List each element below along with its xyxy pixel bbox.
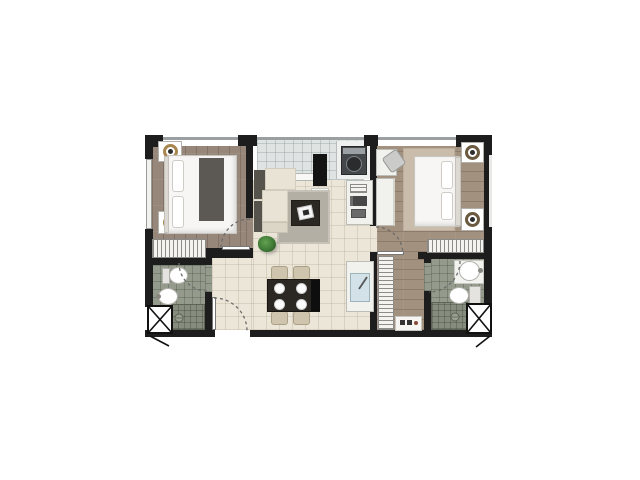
dining-table-gloss [311, 280, 320, 311]
slippers [400, 320, 405, 325]
plate [296, 283, 307, 294]
bedside-lamp-icon [465, 212, 480, 227]
bed-1-runner [199, 158, 224, 221]
bed-1-headboard [164, 156, 169, 233]
shower-1 [171, 304, 205, 330]
pillow [172, 160, 184, 192]
washing-machine-drum [346, 156, 362, 172]
wardrobe-bedroom-1 [152, 239, 206, 258]
pillow [441, 192, 453, 220]
slippers [407, 320, 412, 325]
wall-bottom [250, 330, 472, 337]
toilet-tank [469, 286, 481, 304]
bathroom-1-door-threshold [205, 264, 212, 292]
pillow [172, 196, 184, 228]
wall-right [484, 234, 492, 306]
wall-left [145, 135, 153, 159]
plate [274, 283, 285, 294]
toilet-bowl [449, 287, 469, 304]
shower-2 [431, 302, 468, 330]
wall-bedroom1-south [145, 258, 212, 265]
window-left [146, 159, 152, 229]
kitchen-cooktop [350, 196, 367, 206]
wall-bathroom1-east [205, 292, 212, 332]
sofa-seat [262, 190, 288, 222]
shaft-vent-flap [150, 336, 169, 346]
plate [274, 299, 285, 310]
shaft-vent-flap [476, 336, 490, 347]
sofa-seat-end [262, 222, 288, 233]
window-right [489, 155, 492, 227]
bedroom-1-door-threshold [246, 218, 253, 248]
wall-bathroom2-north [418, 252, 492, 259]
pillow [441, 161, 453, 189]
wall-bathroom1-east [205, 258, 212, 264]
dining-chair [271, 266, 288, 280]
wardrobe-corridor [378, 256, 394, 330]
kitchen-sink [350, 273, 370, 302]
washbasin [158, 288, 178, 305]
kitchen-appliance [350, 184, 367, 193]
washbasin [459, 261, 480, 281]
faucet-icon [478, 268, 483, 273]
toilet-bowl [169, 267, 188, 284]
potted-plant [258, 236, 276, 252]
floor-plan-canvas [0, 0, 640, 480]
wardrobe-bedroom-2 [427, 239, 484, 253]
bathroom-2-door-threshold [424, 263, 431, 291]
washing-machine-panel [343, 148, 365, 154]
dining-chair [293, 311, 310, 325]
plate [296, 299, 307, 310]
wall-bathroom2-west [424, 291, 431, 332]
kitchen-appliance [351, 209, 366, 218]
sofa-chaise [265, 168, 296, 190]
service-shaft-1 [147, 305, 173, 334]
kitchen-door-threshold [370, 226, 377, 252]
top-window-glass [149, 137, 492, 140]
bedside-lamp-icon [465, 145, 480, 160]
mat-item [414, 321, 418, 325]
service-shaft-2 [466, 303, 492, 334]
wall-console [376, 178, 395, 226]
bedroom-2-door-leaf [377, 251, 404, 255]
wall-bedroom1-east [246, 141, 253, 218]
dining-chair [271, 311, 288, 325]
wall-bathroom2-west [424, 259, 431, 263]
bedroom-1-door-leaf [222, 246, 250, 250]
bed-2 [414, 156, 460, 227]
tv-partition [313, 154, 327, 186]
entry-door-leaf [212, 297, 216, 330]
entry-floor [212, 257, 253, 330]
dining-chair [293, 266, 310, 280]
faucet-icon [156, 294, 161, 299]
